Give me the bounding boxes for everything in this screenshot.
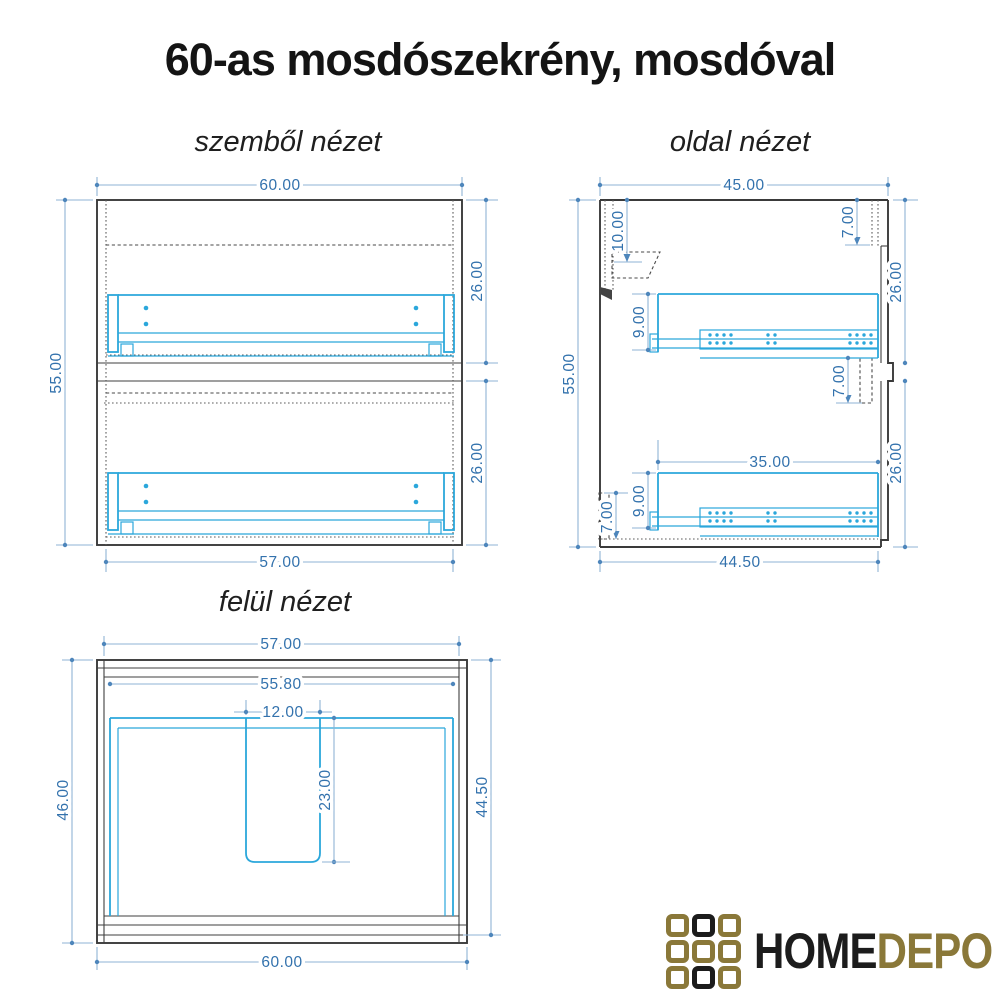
logo-grid	[666, 914, 741, 989]
front-dim-width-bottom: 57.00	[259, 554, 300, 571]
side-view-drawing: 45.00 55.00 10.00 7.00 26.00	[561, 177, 918, 572]
logo-text-home: HOME	[754, 923, 877, 979]
logo-text-depo: DEPO	[877, 923, 993, 979]
front-upper-drawer	[108, 295, 454, 356]
top-dimensions: 57.00 55.80 12.00 23.00 46.00	[55, 636, 501, 971]
logo-grid-square	[718, 940, 741, 963]
side-dim-plinth-left: 7.00	[599, 501, 616, 533]
top-view-drawing: 57.00 55.80 12.00 23.00 46.00	[55, 636, 501, 971]
top-dim-cutout-depth: 23.00	[317, 769, 334, 810]
front-lower-drawer	[108, 473, 454, 534]
logo-grid-square	[692, 914, 715, 937]
side-dim-rail-top: 9.00	[631, 306, 648, 338]
top-dim-width-top: 57.00	[260, 636, 301, 653]
front-dim-section-top: 26.00	[469, 260, 486, 301]
side-dim-height-left: 55.00	[561, 353, 578, 394]
wall-bracket	[600, 287, 612, 300]
top-dim-depth-left: 46.00	[55, 779, 72, 820]
side-dim-section-bottom: 26.00	[888, 442, 905, 483]
sink-basin-outline	[110, 718, 453, 916]
side-dim-section-top: 26.00	[888, 261, 905, 302]
technical-drawing-page: 60-as mosdószekrény, mosdóval szemből né…	[0, 0, 1000, 1000]
side-dim-drawer-length: 35.00	[749, 454, 790, 471]
front-view-drawing: 60.00 55.00 26.00 26.00	[48, 177, 498, 572]
front-dim-section-bottom: 26.00	[469, 442, 486, 483]
front-dim-height-left: 55.00	[48, 352, 65, 393]
side-lower-drawer	[650, 473, 878, 537]
side-dim-gap-mid-right: 7.00	[831, 365, 848, 397]
side-dim-depth-top: 45.00	[723, 177, 764, 194]
top-dim-depth-right: 44.50	[474, 776, 491, 817]
side-dim-gap-top-right: 7.00	[840, 206, 857, 238]
front-dimensions: 60.00 55.00 26.00 26.00	[48, 177, 498, 572]
logo-grid-square	[666, 914, 689, 937]
siphon-outline	[612, 252, 660, 278]
side-dim-depth-bottom: 44.50	[719, 554, 760, 571]
faucet-cutout	[246, 718, 320, 862]
logo-grid-square	[718, 966, 741, 989]
front-dim-width-top: 60.00	[259, 177, 300, 194]
logo-grid-square	[692, 966, 715, 989]
logo-grid-square	[666, 966, 689, 989]
top-dim-width-bottom: 60.00	[261, 954, 302, 971]
logo-grid-square	[666, 940, 689, 963]
side-upper-drawer	[650, 294, 878, 358]
logo-grid-square	[718, 914, 741, 937]
side-dim-inset-top-left: 10.00	[610, 210, 627, 251]
top-dim-inner-width: 55.80	[260, 676, 301, 693]
top-dim-cutout-width: 12.00	[262, 704, 303, 721]
logo-text: HOMEDEPO	[754, 926, 992, 976]
homedepo-logo: HOMEDEPO	[666, 912, 996, 994]
drawing-canvas: 60.00 55.00 26.00 26.00	[0, 0, 1000, 1000]
logo-grid-square	[692, 940, 715, 963]
side-dim-rail-bottom: 9.00	[631, 485, 648, 517]
